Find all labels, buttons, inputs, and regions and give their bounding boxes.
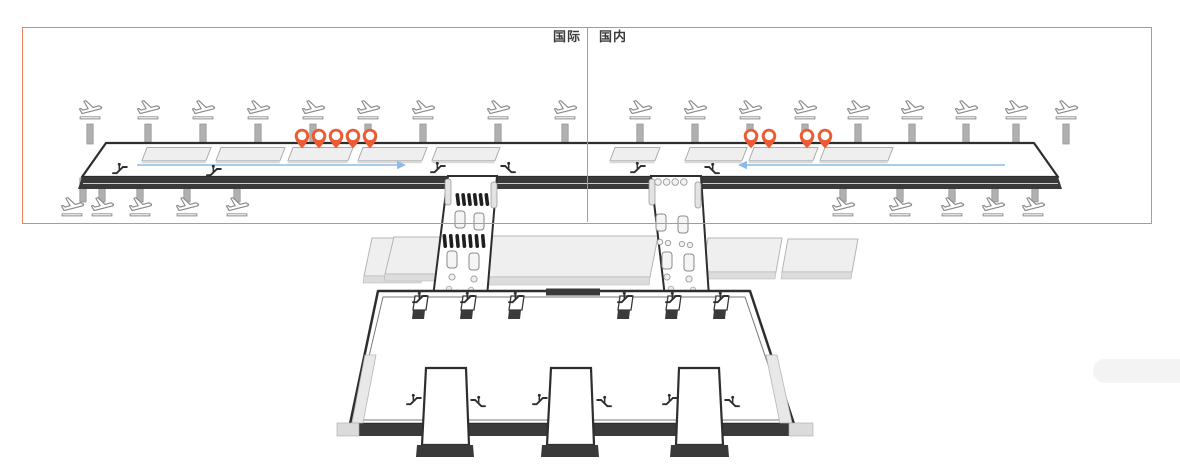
terminal-pier-band: [541, 445, 599, 457]
moving-walkway: [216, 148, 285, 161]
corridor-dot: [681, 179, 688, 186]
moving-walkway: [142, 148, 211, 161]
airplane-departure-icon: [137, 101, 159, 119]
moving-walkway: [820, 148, 893, 161]
corridor-dot: [663, 179, 670, 186]
airplane-departure-icon: [192, 101, 214, 119]
airplane-departure-icon: [847, 101, 869, 119]
airplane-departure-icon: [1005, 101, 1027, 119]
airplane-departure-icon: [629, 101, 651, 119]
airport-terminal-map: 国际 国内: [0, 0, 1180, 476]
airplane-departure-icon: [412, 101, 434, 119]
elevator-car: [447, 251, 457, 268]
moving-walkway: [749, 148, 818, 161]
jet-bridge-stub: [420, 124, 426, 144]
moving-walkway-edge: [820, 161, 889, 164]
connector-slab: [782, 239, 858, 272]
jet-bridge-stub: [200, 124, 206, 144]
elevator-car: [662, 252, 672, 269]
terminal-pier: [676, 368, 723, 445]
terminal-pier: [422, 368, 469, 445]
corridor-dot: [657, 239, 662, 244]
terminal-bridge-end: [617, 310, 630, 319]
elevator-car: [455, 211, 465, 228]
airplane-departure-icon: [901, 101, 923, 119]
connector-slab-edge: [701, 272, 776, 279]
airplane-departure-icon: [302, 101, 324, 119]
elevator-car: [469, 253, 479, 270]
moving-walkway-edge: [216, 161, 281, 164]
jet-bridge-stub: [87, 124, 93, 144]
airplane-departure-icon: [554, 101, 576, 119]
elevator-car: [474, 213, 484, 230]
airplane-departure-icon: [357, 101, 379, 119]
corridor-dot: [471, 276, 477, 282]
moving-walkway-edge: [432, 161, 496, 164]
terminal-hall: [337, 289, 813, 458]
connector-slab-edge: [481, 277, 650, 285]
moving-walkway: [610, 148, 660, 161]
jet-bridge-stub: [855, 124, 861, 144]
elevator-car: [656, 214, 666, 231]
jet-bridge-stub: [1013, 124, 1019, 144]
moving-walkway-edge: [142, 161, 207, 164]
terminal-bridge-end: [713, 310, 726, 319]
moving-walkway: [358, 148, 427, 161]
jet-bridge-stub: [495, 124, 501, 144]
jet-bridge-stub: [692, 124, 698, 144]
elevator-car: [684, 254, 694, 271]
corridor-dot: [672, 179, 679, 186]
terminal-band-cap-right: [789, 423, 813, 436]
jet-bridge-stub: [145, 124, 151, 144]
terminal-bridge-end: [508, 310, 521, 319]
corridor-dot: [449, 274, 455, 280]
moving-walkway-edge: [358, 161, 423, 164]
terminal-map-canvas: [0, 0, 1180, 476]
corridor-dot: [686, 276, 692, 282]
connector-slab: [482, 236, 658, 277]
corridor-rail: [649, 179, 655, 205]
corridor-dot: [665, 240, 670, 245]
airplane-departure-icon: [247, 101, 269, 119]
moving-walkway: [432, 148, 500, 161]
airplane-departure-icon: [1055, 101, 1077, 119]
corridor-rail: [491, 182, 497, 208]
connector-slab: [702, 238, 782, 272]
corridor-dot: [687, 242, 692, 247]
moving-walkway: [288, 148, 353, 161]
terminal-pier: [547, 368, 594, 445]
jet-bridge-stub: [909, 124, 915, 144]
corridor-dot: [655, 179, 662, 186]
moving-walkway-edge: [610, 161, 656, 164]
corridor-dot: [679, 241, 684, 246]
terminal-bridge-end: [460, 310, 473, 319]
elevator-car: [678, 216, 688, 233]
jet-bridge-stub: [255, 124, 261, 144]
corridor-dot: [664, 274, 670, 280]
terminal-band-cap-left: [337, 423, 359, 436]
moving-walkway-edge: [288, 161, 349, 164]
connector-slab-edge: [781, 272, 852, 279]
terminal-center-entrance: [546, 289, 600, 296]
corridor-rail: [445, 179, 451, 205]
terminal-pier-band: [416, 445, 474, 457]
airplane-departure-icon: [79, 101, 101, 119]
jet-bridge-stub: [562, 124, 568, 144]
airplane-departure-icon: [487, 101, 509, 119]
jet-bridge-stub: [963, 124, 969, 144]
moving-walkway-edge: [749, 161, 814, 164]
terminal-bridge-end: [665, 310, 678, 319]
airplane-departure-icon: [955, 101, 977, 119]
corridor-rail: [695, 182, 701, 208]
jet-bridge-stub: [637, 124, 643, 144]
airplane-departure-icon: [684, 101, 706, 119]
international-zone-label: 国际: [521, 30, 581, 44]
domestic-zone-label: 国内: [599, 30, 627, 44]
terminal-bridge-end: [412, 310, 425, 319]
airplane-departure-icon: [794, 101, 816, 119]
moving-walkway: [685, 148, 747, 161]
airplane-departure-icon: [739, 101, 761, 119]
moving-walkway-edge: [685, 161, 743, 164]
terminal-pier-band: [670, 445, 729, 457]
jet-bridge-stub: [1063, 124, 1069, 144]
